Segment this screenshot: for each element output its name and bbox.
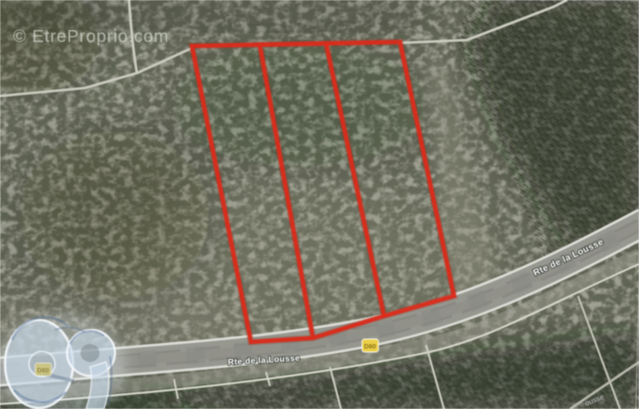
svg-text:D60: D60 [364, 343, 376, 350]
svg-text:© EtreProprio.com: © EtreProprio.com [13, 26, 169, 46]
svg-text:D60: D60 [37, 367, 49, 374]
